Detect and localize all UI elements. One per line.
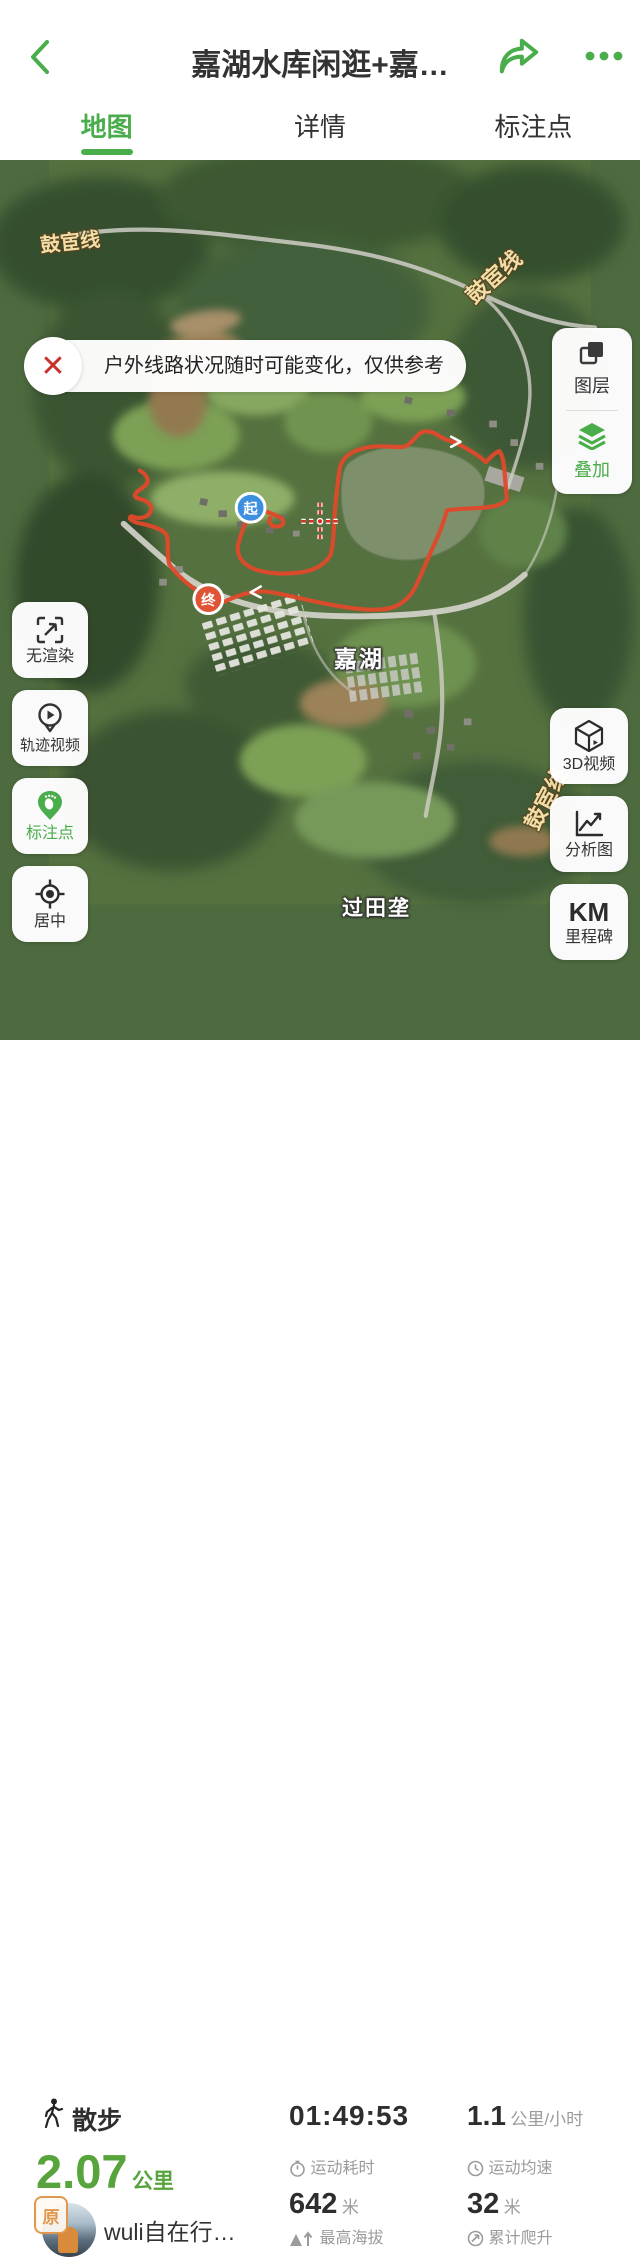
avg-speed-label: 运动均速	[488, 2160, 552, 2177]
back-icon[interactable]	[28, 38, 52, 76]
center-button[interactable]: 居中	[12, 866, 88, 942]
nav-bar: 嘉湖水库闲逛+嘉…	[0, 0, 640, 90]
tab-map[interactable]: 地图	[0, 90, 213, 160]
map-layer-controls: 图层 叠加	[552, 328, 632, 494]
stats-panel: 散步 01:49:53 1.1 公里/小时 运动耗时 运动均速 2.07 公里 …	[0, 1040, 640, 1198]
activity-type: 散步	[72, 2101, 122, 2137]
clock-icon	[467, 2160, 484, 2177]
distance-value: 2.07	[36, 2145, 127, 2198]
stack-layers-icon	[577, 422, 607, 450]
duration-value: 01:49:53	[289, 2100, 409, 2132]
app-screen: { "nav": { "title": "嘉湖水库闲逛+嘉…", "back_i…	[0, 0, 640, 1198]
waypoint-label: 标注点	[26, 826, 74, 842]
original-badge: 原	[34, 2196, 68, 2234]
walk-icon	[42, 2098, 64, 2128]
user-name[interactable]: wuli自在行…	[104, 2213, 236, 2247]
more-icon[interactable]	[584, 50, 624, 62]
expand-arrow-icon	[36, 616, 64, 644]
map-canvas[interactable]: 起 终 鼓宦线 鼓宦线 鼓宦线 嘉湖 过田垄 户外线路状况随时可能变化，仅供参考…	[0, 160, 640, 1040]
milestone-label: 里程碑	[565, 930, 613, 946]
end-marker-label: 终	[201, 591, 216, 609]
waypoint-button[interactable]: 标注点	[12, 778, 88, 854]
page-title: 嘉湖水库闲逛+嘉…	[120, 40, 520, 84]
lake-label: 嘉湖	[334, 640, 384, 674]
tab-bar: 地图 详情 标注点	[0, 90, 640, 160]
overlay-button[interactable]: 叠加	[552, 411, 632, 493]
play-pin-icon	[36, 703, 64, 733]
tab-waypoints[interactable]: 标注点	[427, 90, 640, 160]
distance-unit: 公里	[132, 2170, 174, 2193]
tab-details[interactable]: 详情	[213, 90, 426, 160]
village-label: 过田垄	[342, 892, 411, 922]
max-altitude-value: 642	[289, 2188, 337, 2220]
active-tab-underline	[81, 149, 133, 155]
alert-text: 户外线路状况随时可能变化，仅供参考	[40, 340, 466, 392]
total-climb-value: 32	[467, 2188, 499, 2220]
no-render-label: 无渲染	[26, 649, 74, 665]
center-target-icon	[35, 879, 65, 909]
alert-close-icon[interactable]: ✕	[24, 337, 82, 395]
center-label: 居中	[34, 914, 66, 930]
track-video-label: 轨迹视频	[20, 738, 80, 753]
video-3d-button[interactable]: 3D视频	[550, 708, 628, 784]
layers-button[interactable]: 图层	[552, 328, 632, 410]
tab-waypoints-label: 标注点	[494, 107, 572, 144]
tab-details-label: 详情	[294, 107, 346, 144]
track-video-button[interactable]: 轨迹视频	[12, 690, 88, 766]
start-marker-label: 起	[242, 501, 258, 518]
max-altitude-label: 最高海拔	[319, 2230, 383, 2247]
analysis-button[interactable]: 分析图	[550, 796, 628, 872]
share-icon[interactable]	[496, 36, 542, 78]
line-chart-icon	[574, 810, 604, 838]
max-altitude-unit: 米	[342, 2198, 359, 2217]
layers-button-label: 图层	[574, 372, 610, 398]
end-marker[interactable]: 终	[194, 585, 223, 614]
layers-squares-icon	[579, 340, 605, 366]
cube-play-icon	[574, 720, 604, 752]
total-climb-label: 累计爬升	[488, 2230, 552, 2247]
satellite-basemap: 起 终	[0, 160, 640, 1040]
total-climb-unit: 米	[504, 2198, 521, 2217]
avg-speed-unit: 公里/小时	[510, 2110, 583, 2129]
tab-map-label: 地图	[81, 107, 133, 144]
no-render-button[interactable]: 无渲染	[12, 602, 88, 678]
stopwatch-icon	[289, 2160, 306, 2177]
climb-icon	[467, 2230, 484, 2247]
avg-speed-value: 1.1	[467, 2100, 506, 2131]
milestone-km-text: KM	[569, 899, 609, 925]
analysis-label: 分析图	[565, 843, 613, 859]
mountain-icon	[289, 2230, 315, 2247]
start-marker[interactable]: 起	[236, 493, 265, 522]
overlay-button-label: 叠加	[574, 456, 610, 482]
video-3d-label: 3D视频	[563, 757, 615, 773]
milestone-button[interactable]: KM 里程碑	[550, 884, 628, 960]
duration-label: 运动耗时	[310, 2160, 374, 2177]
footprint-pin-icon	[37, 791, 63, 821]
